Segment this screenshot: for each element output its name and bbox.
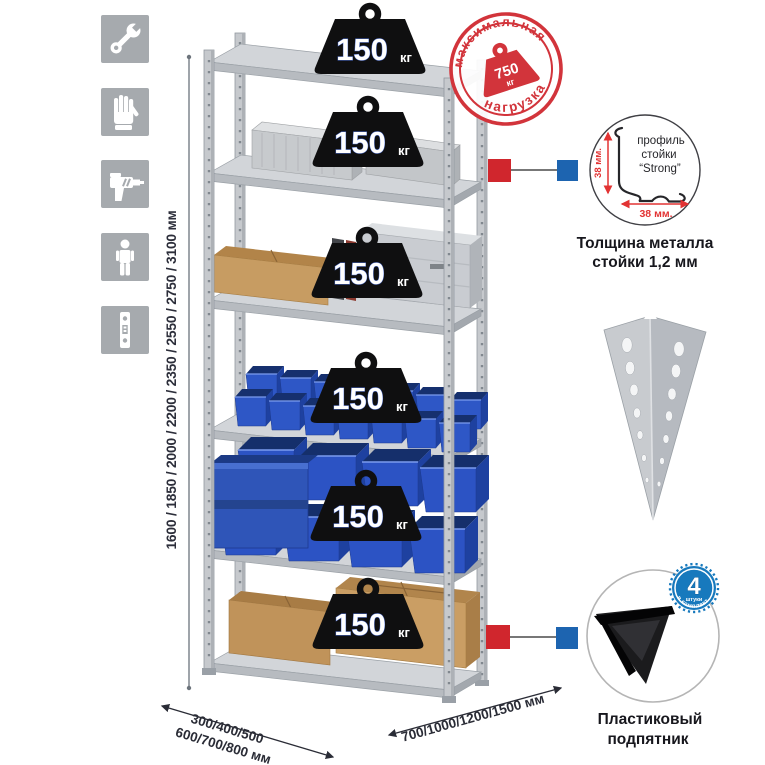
width-dimension-label: 700/1000/1200/1500 мм [400, 691, 546, 745]
profile-label-line1: профиль [637, 135, 685, 147]
rack-scene: 1600 / 1850 / 2000 / 2200 / 2350 / 2550 … [0, 0, 765, 765]
width-dimension: 700/1000/1200/1500 мм [389, 688, 561, 745]
weight-badge-2: 150 кг [313, 99, 424, 167]
callout-red-square-bottom [486, 625, 510, 649]
svg-text:кг: кг [398, 625, 411, 640]
svg-text:150: 150 [332, 499, 384, 534]
shelving-rack-infographic: 1600 / 1850 / 2000 / 2200 / 2350 / 2550 … [0, 0, 765, 765]
depth-dimension: 300/400/500 600/700/800 мм [162, 706, 333, 765]
svg-text:150: 150 [332, 381, 384, 416]
svg-text:кг: кг [396, 399, 409, 414]
svg-text:150: 150 [334, 607, 386, 642]
svg-text:кг: кг [396, 517, 409, 532]
profile-horizontal-dim: 38 мм. [639, 208, 672, 220]
profile-vertical-dim: 38 мм. [593, 148, 604, 178]
max-load-stamp: максимальная нагрузка 750 кг [437, 0, 576, 138]
weight-badge-4: 150 кг [311, 355, 422, 423]
profile-caption-line1: Толщина металла [577, 235, 714, 252]
profile-label-line3: “Strong” [639, 163, 681, 175]
foot-caption-line1: Пластиковый [598, 711, 703, 728]
callout-connectors [486, 159, 578, 649]
badge-count: 4 [687, 573, 701, 600]
foot-caption-line2: подпятник [607, 731, 688, 748]
svg-text:150: 150 [334, 125, 386, 160]
svg-text:150: 150 [333, 256, 385, 291]
callout-red-square-top [488, 159, 511, 182]
callout-blue-square-bottom [556, 627, 578, 649]
callout-blue-square-top [557, 160, 578, 181]
height-dimension: 1600 / 1850 / 2000 / 2200 / 2350 / 2550 … [164, 55, 191, 690]
svg-text:кг: кг [397, 274, 410, 289]
badge-small-text: штуки [686, 597, 703, 603]
profile-label-line2: стойки [641, 149, 676, 161]
svg-text:кг: кг [400, 50, 413, 65]
post-profile-detail: 38 мм. 38 мм. профиль стойки “Strong” То… [577, 115, 714, 271]
angle-post-image [604, 308, 706, 520]
weight-badge-1: 150 кг [315, 6, 426, 74]
height-dimension-label: 1600 / 1850 / 2000 / 2200 / 2350 / 2550 … [164, 210, 179, 549]
svg-text:150: 150 [336, 32, 388, 67]
profile-caption-line2: стойки 1,2 мм [592, 254, 697, 271]
svg-text:кг: кг [398, 143, 411, 158]
